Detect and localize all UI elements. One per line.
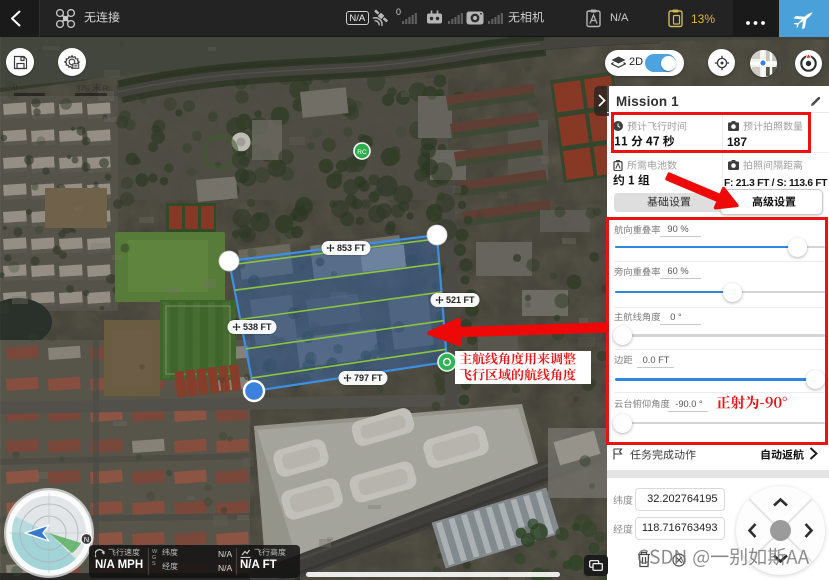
svg-text:N: N: [84, 535, 89, 544]
svg-text:RC: RC: [357, 149, 367, 156]
